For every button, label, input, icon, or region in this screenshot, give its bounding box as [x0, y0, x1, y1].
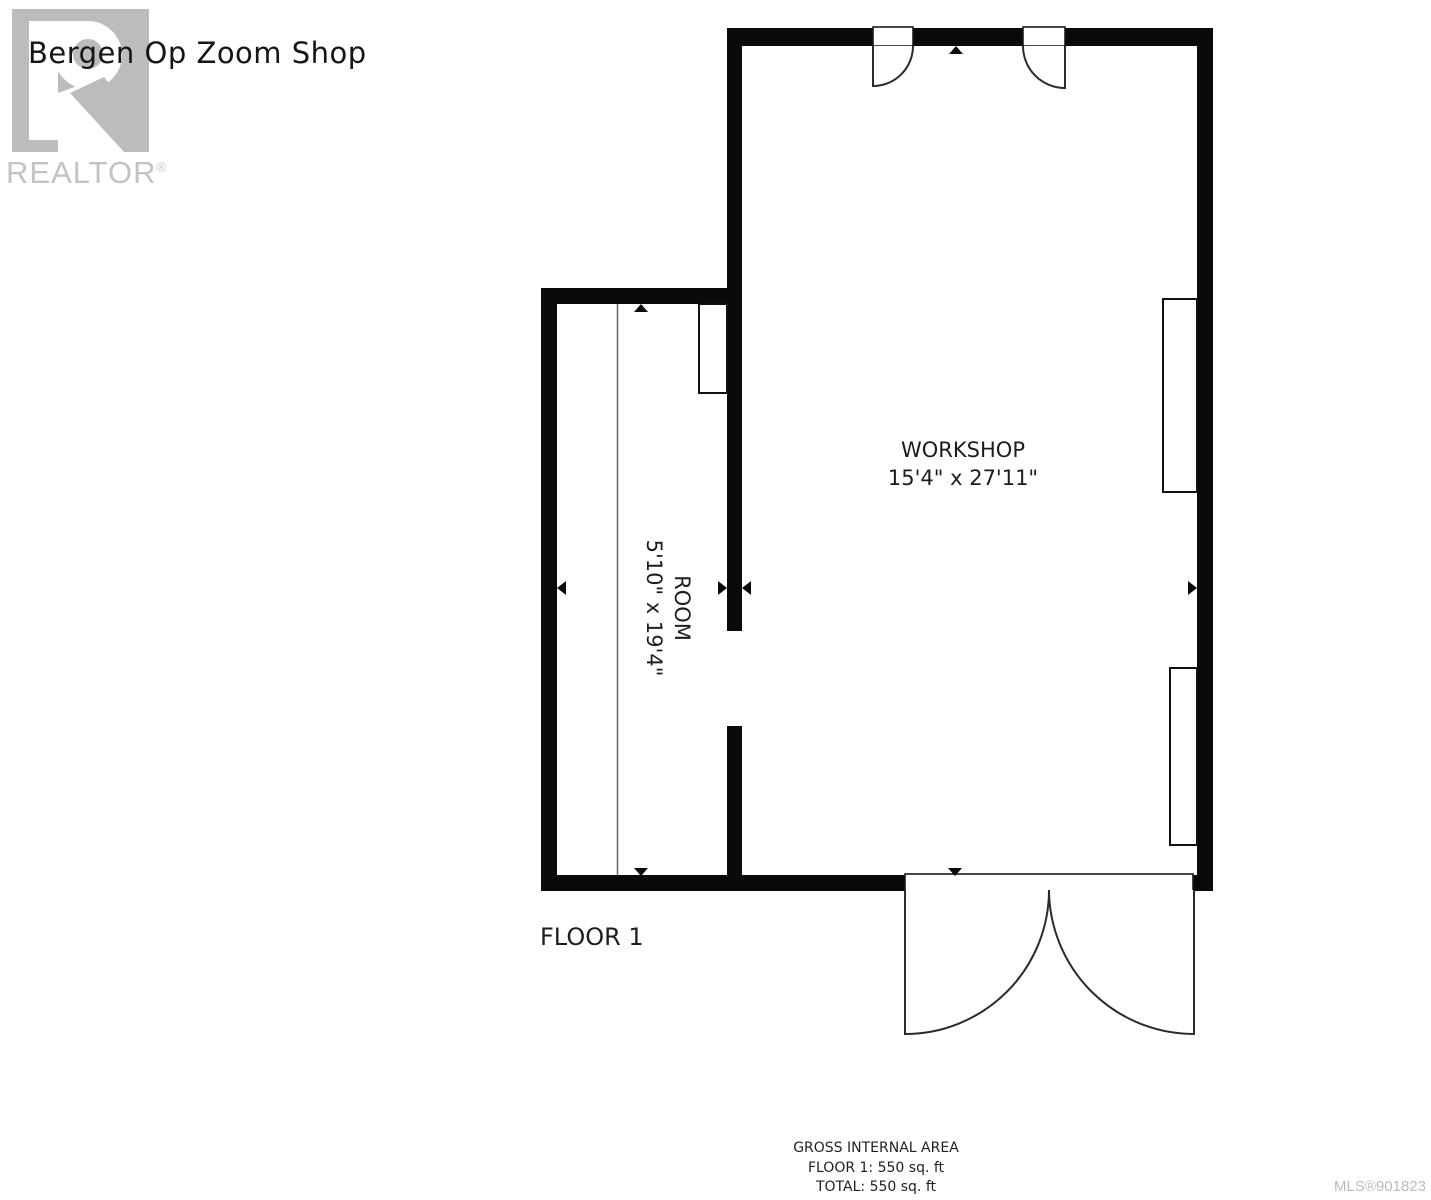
wall-interior-upper [727, 28, 742, 631]
double-door-right-leaf [1049, 890, 1194, 1034]
arrow-right-workshop-icon [1188, 581, 1197, 595]
wall-bottom-right-corner [1192, 875, 1213, 891]
workshop-label: WORKSHOP 15'4" x 27'11" [888, 436, 1038, 492]
floor-label: FLOOR 1 [540, 923, 644, 951]
room-name: ROOM [668, 540, 696, 677]
area-summary-title: GROSS INTERNAL AREA [676, 1139, 1076, 1159]
double-door-left-leaf [905, 890, 1049, 1034]
room-label: ROOM 5'10" x 19'4" [640, 540, 696, 677]
arrow-left-workshop-icon [742, 581, 751, 595]
dimension-arrows [557, 46, 1197, 876]
wall-workshop-right [1197, 28, 1213, 891]
arrow-up-workshop-icon [949, 46, 963, 54]
wall-interior-lower [727, 726, 742, 875]
workshop-right-wall-fixture-upper [1163, 299, 1197, 492]
area-summary-floor: FLOOR 1: 550 sq. ft [676, 1159, 1076, 1179]
wall-room-left [541, 288, 557, 891]
wall-bottom [541, 875, 906, 891]
door-sill-top-left [873, 27, 913, 46]
workshop-right-wall-fixture-lower [1170, 668, 1197, 845]
door-swing-top-left [873, 46, 913, 86]
floor-plan-drawing [0, 0, 1431, 1200]
workshop-name: WORKSHOP [888, 436, 1038, 464]
wall-room-top [541, 288, 742, 304]
area-summary: GROSS INTERNAL AREA FLOOR 1: 550 sq. ft … [676, 1139, 1076, 1198]
workshop-dimensions: 15'4" x 27'11" [888, 464, 1038, 492]
mls-number: MLS®901823 [1334, 1178, 1426, 1195]
arrow-left-room-icon [557, 581, 566, 595]
area-summary-total: TOTAL: 550 sq. ft [676, 1178, 1076, 1198]
room-dimensions: 5'10" x 19'4" [640, 540, 668, 677]
wall-workshop-top [727, 28, 1213, 46]
door-swing-top-right [1023, 46, 1065, 88]
walls [541, 28, 1213, 891]
door-sill-top-right [1023, 27, 1065, 46]
room-closet-fixture [699, 304, 727, 393]
fixtures [699, 299, 1197, 845]
arrow-down-room-icon [634, 868, 648, 876]
arrow-right-room-icon [718, 581, 727, 595]
door-sill-bottom-double [905, 874, 1193, 891]
arrow-up-room-icon [634, 304, 648, 312]
floor-plan-page: REALTOR® Bergen Op Zoom Shop [0, 0, 1431, 1200]
